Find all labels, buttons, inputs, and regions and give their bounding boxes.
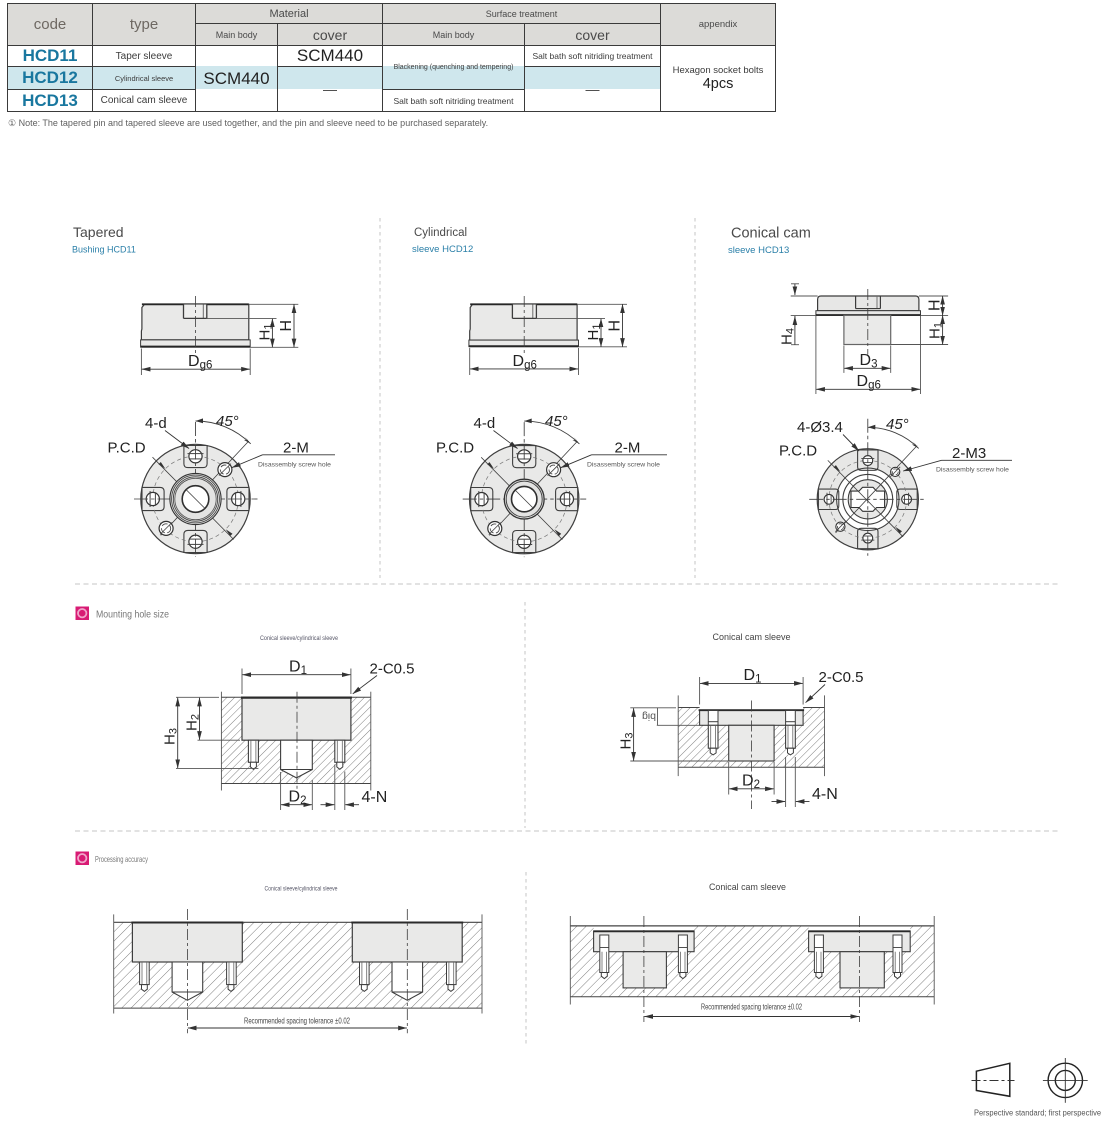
svg-text:H: H	[607, 320, 624, 332]
svg-text:H2: H2	[183, 714, 201, 731]
svg-text:sleeve HCD13: sleeve HCD13	[728, 245, 789, 256]
svg-text:Disassembly screw hole: Disassembly screw hole	[936, 467, 1009, 474]
svg-text:Recommended spacing tolerance: Recommended spacing tolerance ±0.02	[244, 1016, 350, 1026]
svg-text:Dg6: Dg6	[513, 353, 537, 372]
svg-text:Recommended spacing tolerance: Recommended spacing tolerance ±0.02	[701, 1002, 802, 1012]
svg-text:2-C0.5: 2-C0.5	[370, 660, 415, 677]
svg-text:H: H	[278, 320, 295, 332]
svg-text:D3: D3	[860, 352, 878, 371]
svg-text:Conical cam sleeve: Conical cam sleeve	[713, 632, 791, 643]
svg-text:Cylindrical: Cylindrical	[414, 227, 467, 239]
svg-text:Mounting hole size: Mounting hole size	[96, 610, 169, 621]
svg-text:H4: H4	[779, 328, 797, 345]
svg-text:H: H	[927, 299, 944, 311]
svg-text:Disassembly screw hole: Disassembly screw hole	[258, 462, 331, 469]
svg-text:4-d: 4-d	[145, 415, 167, 432]
svg-text:H1: H1	[257, 324, 275, 341]
svg-text:D1: D1	[289, 658, 307, 677]
svg-text:P.C.D: P.C.D	[436, 440, 474, 457]
svg-text:H3: H3	[617, 733, 635, 750]
svg-text:2-M: 2-M	[615, 440, 641, 457]
svg-text:big: big	[642, 711, 656, 723]
svg-text:2-M: 2-M	[283, 440, 309, 457]
svg-text:Conical cam: Conical cam	[731, 226, 811, 242]
svg-text:45°: 45°	[886, 416, 909, 433]
svg-text:Disassembly screw hole: Disassembly screw hole	[587, 462, 660, 469]
svg-text:Conical cam sleeve: Conical cam sleeve	[709, 882, 786, 893]
svg-text:H1: H1	[585, 324, 603, 341]
svg-text:D1: D1	[744, 667, 762, 686]
svg-text:Bushing HCD11: Bushing HCD11	[72, 245, 136, 255]
svg-text:4-N: 4-N	[362, 789, 388, 806]
svg-text:D2: D2	[289, 788, 307, 807]
svg-text:45°: 45°	[216, 413, 239, 430]
svg-text:4-N: 4-N	[812, 786, 838, 803]
svg-text:2-M3: 2-M3	[952, 445, 986, 462]
svg-text:2-C0.5: 2-C0.5	[819, 669, 864, 686]
svg-text:45°: 45°	[545, 413, 568, 430]
svg-text:Dg6: Dg6	[857, 373, 881, 392]
svg-text:Conical sleeve/cylindrical sle: Conical sleeve/cylindrical sleeve	[265, 886, 338, 893]
svg-text:D2: D2	[742, 773, 760, 792]
svg-text:H3: H3	[162, 728, 180, 745]
svg-text:4-Ø3.4: 4-Ø3.4	[797, 419, 843, 436]
svg-text:H1: H1	[927, 322, 945, 339]
svg-text:Tapered: Tapered	[73, 224, 124, 240]
svg-text:P.C.D: P.C.D	[779, 443, 817, 460]
svg-text:Perspective standard; first pe: Perspective standard; first perspective	[974, 1109, 1102, 1118]
svg-text:Processing accuracy: Processing accuracy	[95, 854, 149, 864]
svg-text:P.C.D: P.C.D	[108, 440, 146, 457]
svg-text:4-d: 4-d	[474, 415, 496, 432]
svg-text:sleeve HCD12: sleeve HCD12	[412, 244, 473, 255]
svg-text:Conical sleeve/cylindrical sle: Conical sleeve/cylindrical sleeve	[260, 635, 338, 642]
svg-text:Dg6: Dg6	[188, 353, 212, 372]
